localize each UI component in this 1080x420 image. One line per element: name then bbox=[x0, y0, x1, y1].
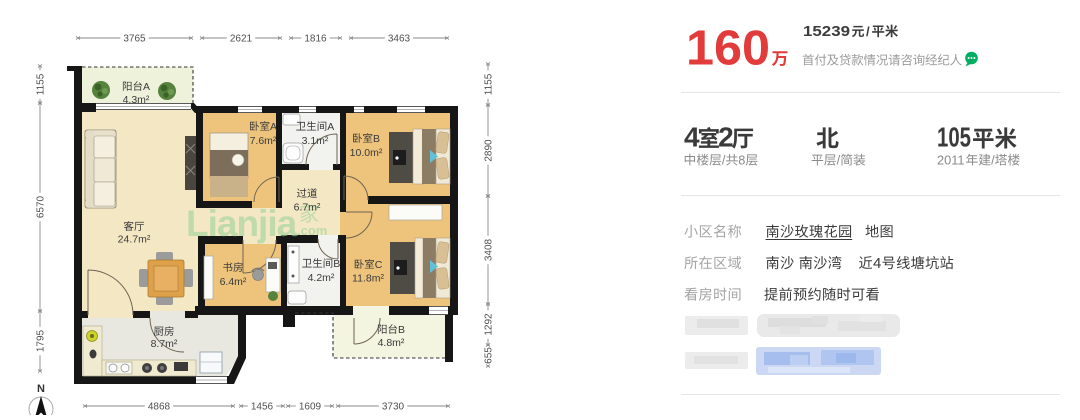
svg-text:2890: 2890 bbox=[484, 139, 495, 162]
svg-text:7.6m²: 7.6m² bbox=[250, 135, 277, 147]
svg-text:1795: 1795 bbox=[36, 329, 47, 352]
svg-text:8: 8 bbox=[738, 153, 745, 168]
svg-text:1155: 1155 bbox=[484, 73, 495, 95]
svg-text:B: B bbox=[398, 324, 405, 336]
svg-text:A: A bbox=[143, 81, 150, 93]
svg-text:11.8m²: 11.8m² bbox=[352, 273, 384, 285]
svg-text:A: A bbox=[327, 121, 334, 133]
svg-text:6.4m²: 6.4m² bbox=[220, 276, 247, 288]
svg-text:.com: .com bbox=[297, 223, 327, 238]
svg-text:N: N bbox=[37, 383, 45, 395]
svg-text:6.7m²: 6.7m² bbox=[294, 202, 321, 214]
svg-text:B: B bbox=[333, 258, 340, 270]
svg-text:3463: 3463 bbox=[388, 34, 411, 45]
svg-text:A: A bbox=[270, 121, 277, 133]
svg-text:/: / bbox=[991, 153, 995, 168]
svg-text:15239: 15239 bbox=[803, 23, 850, 40]
svg-text:4.8m²: 4.8m² bbox=[378, 337, 405, 349]
svg-text:4.3m²: 4.3m² bbox=[123, 94, 150, 106]
svg-text:24.7m²: 24.7m² bbox=[118, 234, 151, 246]
svg-text:/: / bbox=[722, 153, 726, 168]
svg-text:2011: 2011 bbox=[937, 153, 965, 168]
svg-text:Lianjia: Lianjia bbox=[186, 203, 298, 244]
svg-text:4: 4 bbox=[873, 255, 881, 272]
svg-text:6570: 6570 bbox=[36, 195, 47, 218]
svg-text:C: C bbox=[375, 259, 383, 271]
svg-text:1292: 1292 bbox=[484, 313, 495, 336]
svg-text:/: / bbox=[866, 24, 870, 39]
svg-text:3765: 3765 bbox=[123, 34, 146, 45]
svg-text:1609: 1609 bbox=[299, 402, 322, 413]
svg-text:3730: 3730 bbox=[382, 402, 405, 413]
svg-text:10.0m²: 10.0m² bbox=[350, 147, 383, 159]
svg-text:4: 4 bbox=[684, 122, 700, 153]
svg-text:2: 2 bbox=[718, 122, 734, 153]
svg-text:1816: 1816 bbox=[304, 34, 327, 45]
svg-text:105: 105 bbox=[937, 122, 971, 153]
svg-text:160: 160 bbox=[686, 22, 770, 76]
svg-text:4.2m²: 4.2m² bbox=[308, 272, 335, 284]
svg-text:3.1m²: 3.1m² bbox=[302, 135, 329, 147]
svg-text:655: 655 bbox=[484, 347, 495, 364]
svg-text:2621: 2621 bbox=[230, 34, 253, 45]
svg-text:3408: 3408 bbox=[484, 238, 495, 261]
svg-text:B: B bbox=[373, 133, 380, 145]
svg-text:4868: 4868 bbox=[148, 402, 171, 413]
svg-text:8.7m²: 8.7m² bbox=[151, 338, 178, 350]
svg-text:1456: 1456 bbox=[251, 402, 274, 413]
svg-text:/: / bbox=[837, 153, 841, 168]
svg-text:1155: 1155 bbox=[36, 73, 47, 95]
